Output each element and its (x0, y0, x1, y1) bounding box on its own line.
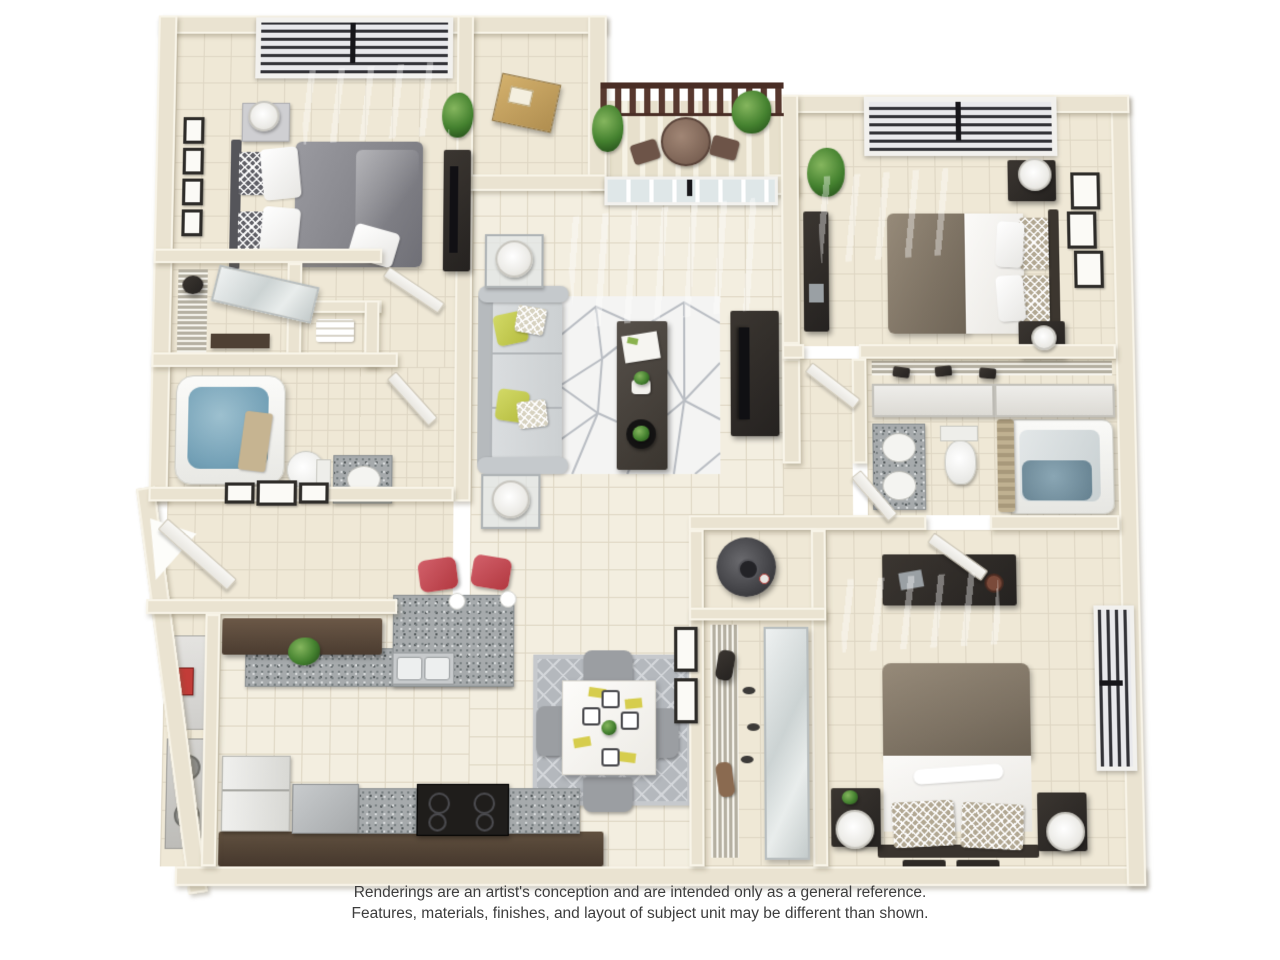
closet2-clothes (934, 365, 952, 377)
hallcloset-shoe (743, 687, 756, 695)
dining-plate (602, 690, 620, 708)
bedroom3-duvet-taupe (882, 663, 1031, 758)
coffee-table-plant (634, 371, 650, 385)
balcony-table (661, 117, 711, 166)
refrigerator-divider (223, 789, 290, 791)
kitchen-sink (392, 652, 454, 684)
stove-cooktop (416, 784, 509, 836)
floorplan-rendering (80, 7, 1201, 890)
hall-plant (592, 105, 623, 152)
hallcloset-mirror-door (764, 627, 810, 860)
bedroom2-plant (807, 148, 845, 197)
end-table-lamp (492, 480, 530, 518)
coffee-table (617, 321, 668, 470)
slider-mullion (687, 180, 692, 196)
bar-stool (417, 556, 459, 593)
wall-corridor-bath2 (852, 359, 868, 464)
dining-table (562, 680, 656, 775)
bedroom2-wall-art (1070, 172, 1100, 209)
bedroom3-laptop (898, 570, 924, 591)
bath2-toilet-tank (940, 426, 978, 442)
master-pillow (260, 146, 302, 201)
bedroom3-accent-pillow (891, 800, 956, 849)
master-wall-art (181, 209, 202, 236)
kitchen-counter-segment (358, 788, 416, 834)
wall-hall-south-b (990, 515, 1120, 530)
sofa-pillow-patterned (516, 399, 549, 430)
bar-plate (448, 593, 465, 610)
closet2-clothes (979, 367, 997, 379)
dining-plate (621, 712, 639, 730)
wall-bedroom2-left-lower (782, 359, 801, 464)
bedroom3-window (1093, 605, 1137, 770)
entry-wall-art (256, 480, 297, 505)
bedroom3-nightstand-plant (842, 790, 858, 804)
master-wall-art (183, 117, 204, 144)
bedroom2-duvet-taupe (887, 214, 968, 334)
bedroom3-lamp (835, 810, 874, 849)
bedroom3-accent-pillow (960, 802, 1024, 851)
kitchen-counter-segment (509, 788, 580, 834)
closet2-sliding-door (872, 384, 995, 418)
bath2-sink (882, 471, 916, 501)
bedroom2-window-mullion (955, 102, 961, 141)
burner (476, 813, 494, 831)
hallcloset-shoe (747, 723, 760, 731)
wall-bedroom2-left (780, 95, 799, 344)
bedroom3-bed (880, 663, 1035, 858)
bedroom2-lamp (1018, 158, 1052, 191)
water-heater-cap (738, 559, 759, 580)
wall-master-south (153, 249, 382, 263)
bedroom2-bed (887, 211, 1061, 335)
bath1-tub (174, 375, 286, 484)
entry-wall-art (225, 482, 255, 503)
master-wall-art (183, 148, 204, 175)
dining-plate (601, 748, 619, 766)
hall-wall-art (674, 678, 698, 723)
bath2-toilet (944, 440, 976, 484)
dining-centerpiece (601, 720, 616, 735)
bar-stool (470, 554, 513, 591)
bar-plate (499, 591, 516, 608)
burner (428, 813, 446, 831)
water-heater-valve (759, 574, 770, 585)
burner (474, 793, 496, 815)
bedroom2-media-stand (803, 211, 829, 331)
bedroom2-pillow (995, 275, 1026, 322)
television (739, 327, 750, 419)
wall-kitchen-north (146, 599, 397, 614)
bath2-shower-curtain (997, 419, 1015, 512)
bowl-greens (633, 426, 650, 442)
sofa-arm (477, 457, 568, 474)
floorplan-page: Renderings are an artist's conception an… (0, 0, 1280, 960)
sliding-glass-door (604, 177, 778, 206)
sofa-arm (478, 286, 568, 303)
sofa-cushion-line (493, 352, 562, 354)
bedroom3-lamp (1046, 812, 1085, 851)
tv-console (730, 311, 779, 436)
bath2-sink (882, 433, 916, 462)
bedroom2-pillow (995, 221, 1025, 268)
wall-hallcloset-right (811, 530, 829, 866)
bedroom2-laptop (809, 284, 824, 303)
kitchen-base-cabinets (218, 832, 603, 867)
hallcloset-shoe (741, 756, 754, 764)
kitchen-sink-basin (397, 657, 423, 681)
placemat (618, 751, 636, 763)
end-table-lamp (495, 240, 533, 277)
master-tv-cabinet (443, 150, 471, 272)
disclaimer-line-1: Renderings are an artist's conception an… (0, 882, 1280, 903)
kitchen-sink-basin (424, 657, 450, 681)
dishwasher (292, 784, 359, 834)
bedroom2-cup (1031, 325, 1057, 350)
wall-hallcloset-divider (689, 608, 826, 621)
bedroom3-dresser (882, 554, 1017, 605)
master-window (255, 17, 453, 78)
sofa (477, 290, 577, 470)
entry-wall-art (299, 482, 329, 503)
hall-wall-art (674, 627, 698, 672)
closet2-clothes (892, 366, 910, 379)
water-heater (716, 537, 776, 597)
bath2-tub (1005, 419, 1115, 514)
wall-storage-south (456, 174, 607, 190)
refrigerator (221, 756, 291, 832)
bedroom3-window-mullion (1099, 680, 1123, 685)
wall-bedroom2-south-b (859, 344, 1116, 359)
bath2-tub-water (1022, 460, 1093, 500)
master-plant (442, 93, 474, 138)
sofa-pillow-patterned (514, 304, 548, 336)
closet2-sliding-door (994, 384, 1115, 418)
dining-chair (583, 777, 632, 812)
placemat (573, 736, 592, 749)
bedroom2-window (864, 97, 1058, 156)
wall-bedroom2-south-a (782, 344, 804, 359)
disclaimer-line-2: Features, materials, finishes, and layou… (0, 903, 1280, 924)
disclaimer-caption: Renderings are an artist's conception an… (0, 882, 1280, 924)
master-wall-art (182, 179, 203, 206)
bedroom2-wall-art (1067, 211, 1097, 248)
bedroom2-wall-art (1074, 251, 1104, 288)
burner (428, 793, 450, 815)
dining-plate (582, 707, 600, 725)
master-tv (449, 166, 458, 252)
master-window-mullion (350, 23, 356, 64)
storage-box-label (508, 86, 534, 107)
bedroom3-decor-bowl (984, 574, 1003, 593)
placemat (625, 698, 643, 709)
wall-bath1-north (151, 352, 398, 367)
walkin-bench (211, 334, 270, 349)
linen-towels (316, 319, 354, 342)
master-wing-floor (165, 30, 457, 614)
kitchen-counter-plant (288, 638, 320, 666)
balcony-plant (732, 91, 772, 134)
